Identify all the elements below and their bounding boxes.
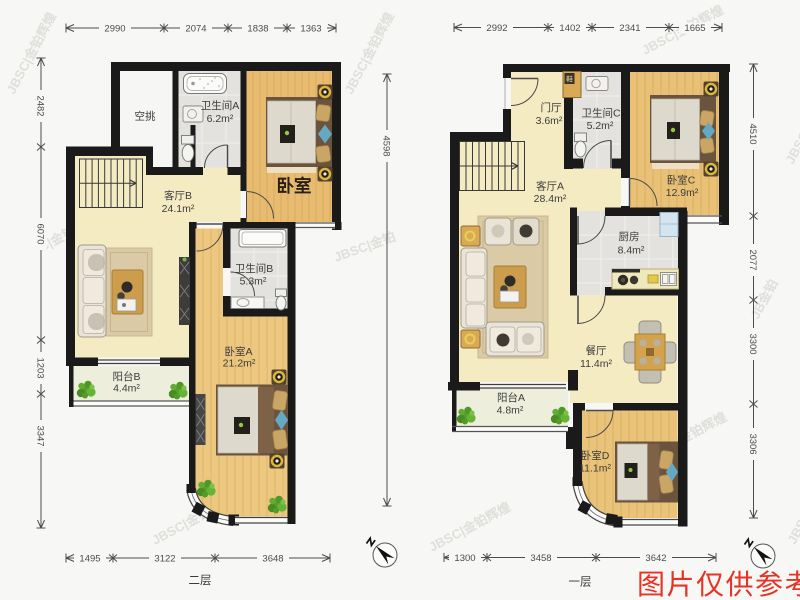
svg-text:卫生间C: 卫生间C (581, 107, 620, 120)
svg-text:11.1m²: 11.1m² (579, 463, 611, 475)
svg-text:厨房: 厨房 (619, 230, 640, 243)
svg-text:卧室: 卧室 (277, 176, 312, 196)
svg-text:3648: 3648 (262, 554, 283, 565)
svg-text:2990: 2990 (104, 24, 125, 35)
svg-text:二层: 二层 (189, 574, 212, 587)
svg-text:2992: 2992 (486, 23, 507, 34)
svg-text:4.4m²: 4.4m² (113, 383, 140, 395)
svg-text:图片仅供参考: 图片仅供参考 (637, 569, 800, 600)
svg-text:1665: 1665 (684, 23, 705, 34)
svg-text:卧室A: 卧室A (224, 345, 252, 358)
svg-text:1203: 1203 (35, 357, 46, 378)
svg-text:24.1m²: 24.1m² (162, 203, 195, 215)
svg-text:3642: 3642 (645, 553, 666, 564)
svg-text:5.3m²: 5.3m² (240, 276, 267, 288)
svg-text:3306: 3306 (747, 433, 758, 454)
svg-text:餐厅: 餐厅 (586, 344, 607, 357)
svg-text:3300: 3300 (747, 333, 758, 354)
svg-text:一层: 一层 (569, 576, 592, 589)
svg-text:3122: 3122 (154, 554, 175, 565)
svg-text:1402: 1402 (559, 23, 580, 34)
svg-text:1363: 1363 (300, 24, 321, 35)
svg-text:阳台B: 阳台B (112, 370, 140, 383)
svg-text:4598: 4598 (381, 135, 392, 156)
svg-text:2077: 2077 (747, 249, 758, 270)
svg-text:6.2m²: 6.2m² (207, 113, 234, 125)
svg-text:客厅B: 客厅B (164, 189, 192, 202)
svg-text:2074: 2074 (185, 24, 206, 35)
svg-text:1838: 1838 (247, 24, 268, 35)
svg-text:5.2m²: 5.2m² (587, 120, 614, 132)
svg-text:1495: 1495 (79, 554, 100, 565)
svg-text:11.4m²: 11.4m² (580, 358, 612, 370)
svg-text:8.4m²: 8.4m² (618, 245, 645, 257)
svg-text:空挑: 空挑 (135, 110, 156, 123)
svg-text:2341: 2341 (619, 23, 640, 34)
svg-text:6070: 6070 (35, 223, 46, 244)
svg-text:门厅: 门厅 (541, 101, 562, 114)
svg-text:卧室D: 卧室D (581, 449, 610, 462)
svg-text:2482: 2482 (35, 95, 46, 116)
svg-text:3458: 3458 (530, 553, 551, 564)
svg-text:卧室C: 卧室C (667, 174, 696, 187)
svg-text:3.6m²: 3.6m² (536, 115, 563, 127)
svg-text:客厅A: 客厅A (536, 180, 564, 193)
svg-text:鞋: 鞋 (566, 75, 573, 84)
svg-text:21.2m²: 21.2m² (223, 358, 256, 370)
svg-text:28.4m²: 28.4m² (534, 193, 567, 205)
svg-text:1300: 1300 (454, 553, 475, 564)
svg-text:12.9m²: 12.9m² (666, 187, 699, 199)
svg-text:4.8m²: 4.8m² (497, 405, 524, 417)
svg-text:阳台A: 阳台A (497, 391, 525, 404)
svg-text:卫生间A: 卫生间A (201, 99, 240, 112)
svg-text:3347: 3347 (35, 425, 46, 446)
svg-text:4510: 4510 (747, 123, 758, 144)
svg-text:卫生间B: 卫生间B (235, 262, 274, 275)
